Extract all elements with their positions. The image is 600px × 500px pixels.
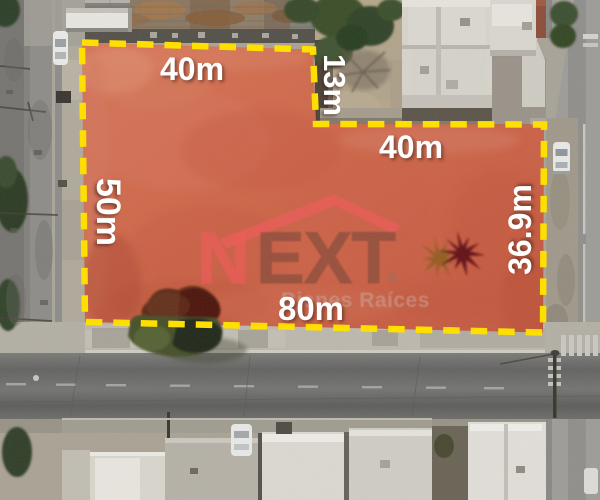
svg-text:80m: 80m bbox=[278, 290, 344, 327]
svg-text:40m: 40m bbox=[160, 51, 224, 87]
svg-text:50m: 50m bbox=[89, 178, 127, 246]
svg-text:13m: 13m bbox=[317, 54, 352, 116]
svg-text:40m: 40m bbox=[379, 129, 443, 165]
svg-text:36.9m: 36.9m bbox=[502, 184, 538, 275]
